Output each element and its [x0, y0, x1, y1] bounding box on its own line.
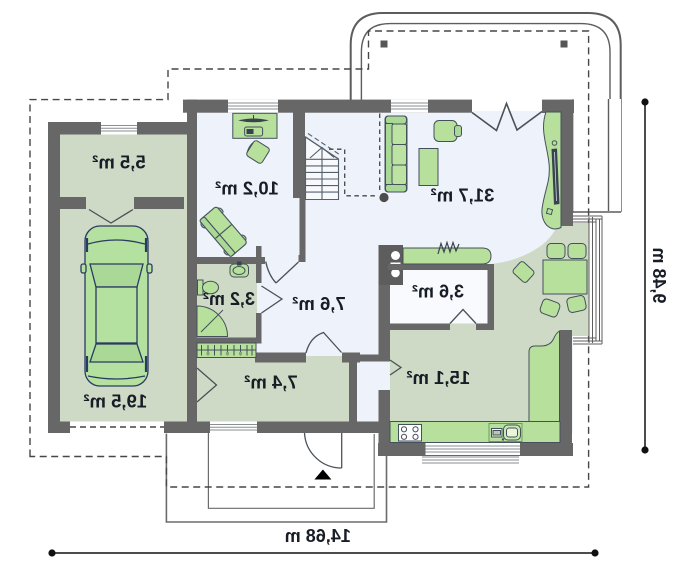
svg-text:3,6 m²: 3,6 m² — [412, 282, 464, 302]
svg-text:19,5 m²: 19,5 m² — [83, 391, 147, 412]
svg-text:7,4 m²: 7,4 m² — [244, 372, 297, 393]
svg-text:5,5 m²: 5,5 m² — [92, 152, 145, 173]
svg-text:9,48 m: 9,48 m — [649, 247, 669, 303]
svg-text:14,68 m: 14,68 m — [285, 526, 351, 546]
svg-text:3,2 m²: 3,2 m² — [203, 289, 255, 309]
svg-text:7,6 m²: 7,6 m² — [292, 293, 345, 314]
svg-text:10,2 m²: 10,2 m² — [215, 178, 279, 199]
svg-text:31,7 m²: 31,7 m² — [431, 185, 495, 206]
svg-text:15,1 m²: 15,1 m² — [406, 367, 470, 388]
